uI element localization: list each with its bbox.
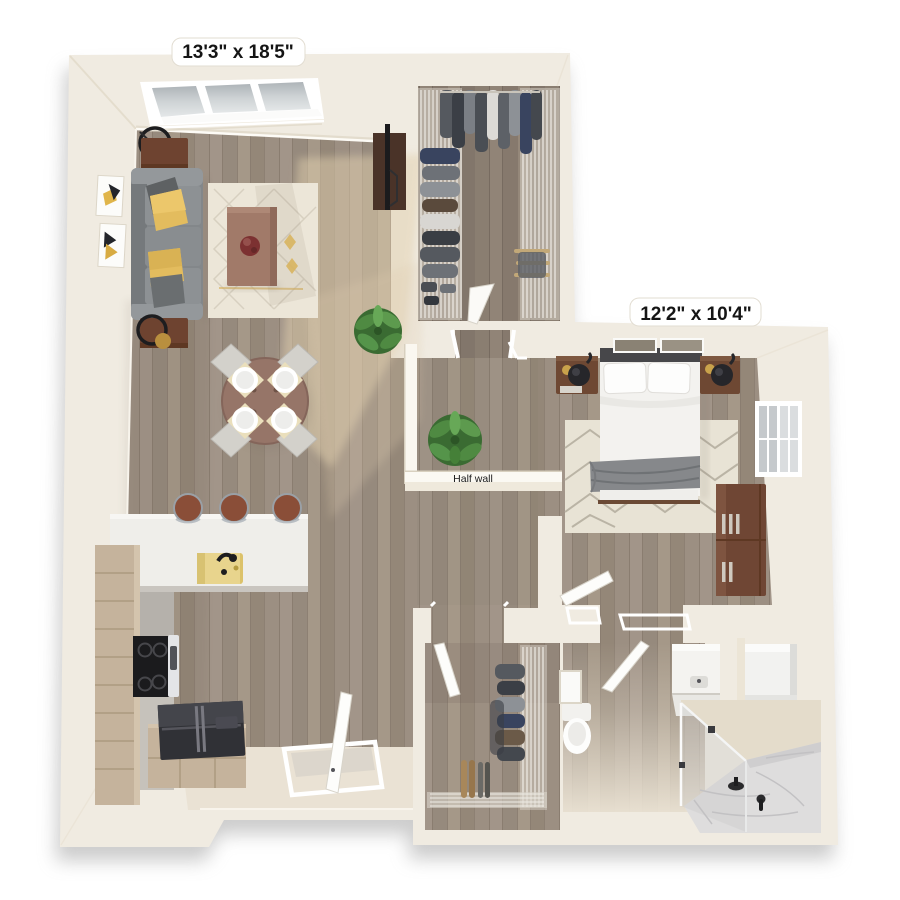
- svg-text:12'2" x 10'4": 12'2" x 10'4": [640, 304, 752, 325]
- svg-text:Half wall: Half wall: [453, 473, 493, 485]
- svg-text:13'3" x 18'5": 13'3" x 18'5": [182, 42, 294, 63]
